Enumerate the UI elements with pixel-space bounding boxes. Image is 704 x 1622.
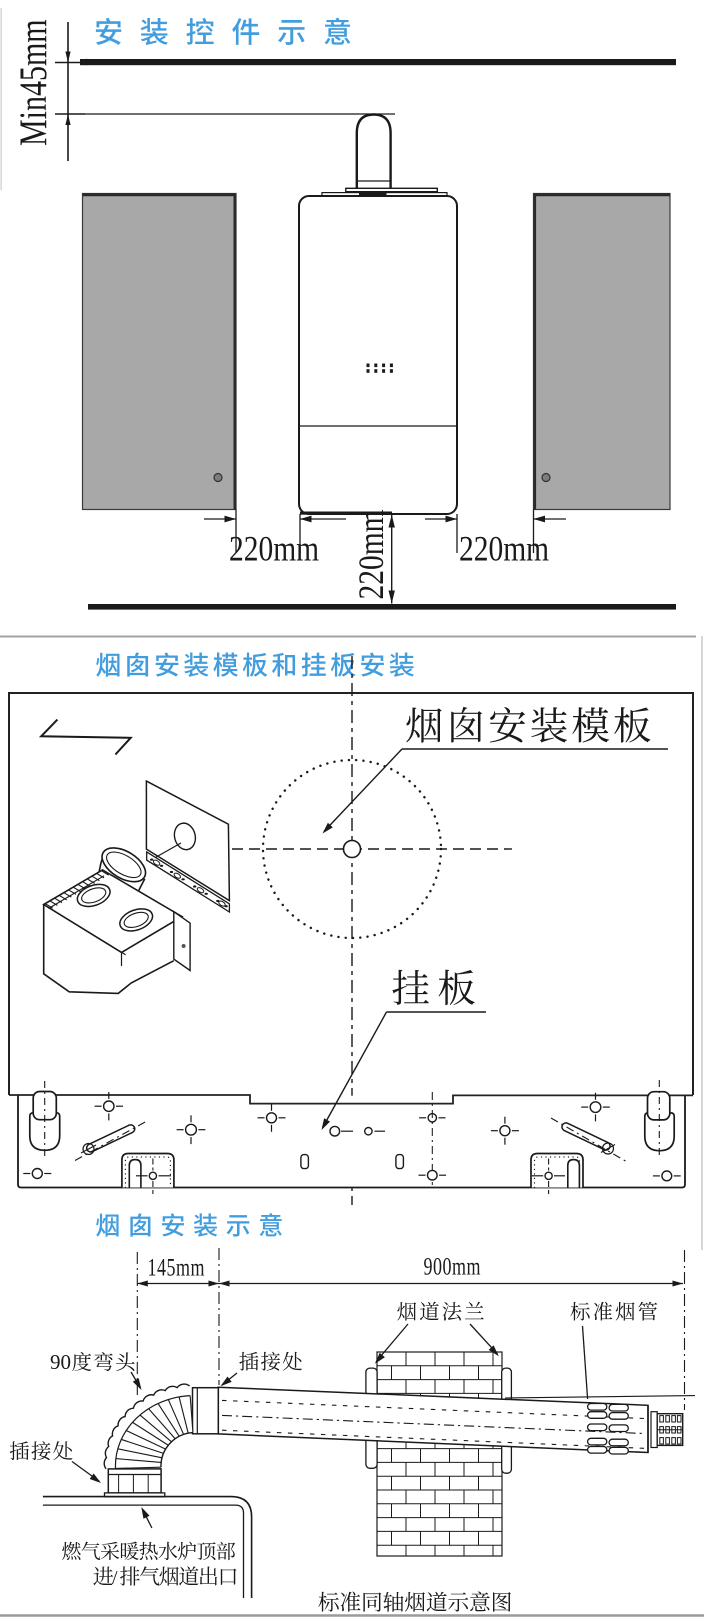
svg-text:220mm: 220mm [459,530,549,569]
svg-text:220mm: 220mm [352,509,391,599]
svg-text:Min45mm: Min45mm [11,19,55,146]
svg-text:/: / [112,1567,118,1589]
svg-text:220mm: 220mm [229,530,319,569]
svg-text:145mm: 145mm [148,1254,206,1281]
svg-text:90: 90 [50,1350,71,1374]
svg-text:900mm: 900mm [424,1253,482,1280]
